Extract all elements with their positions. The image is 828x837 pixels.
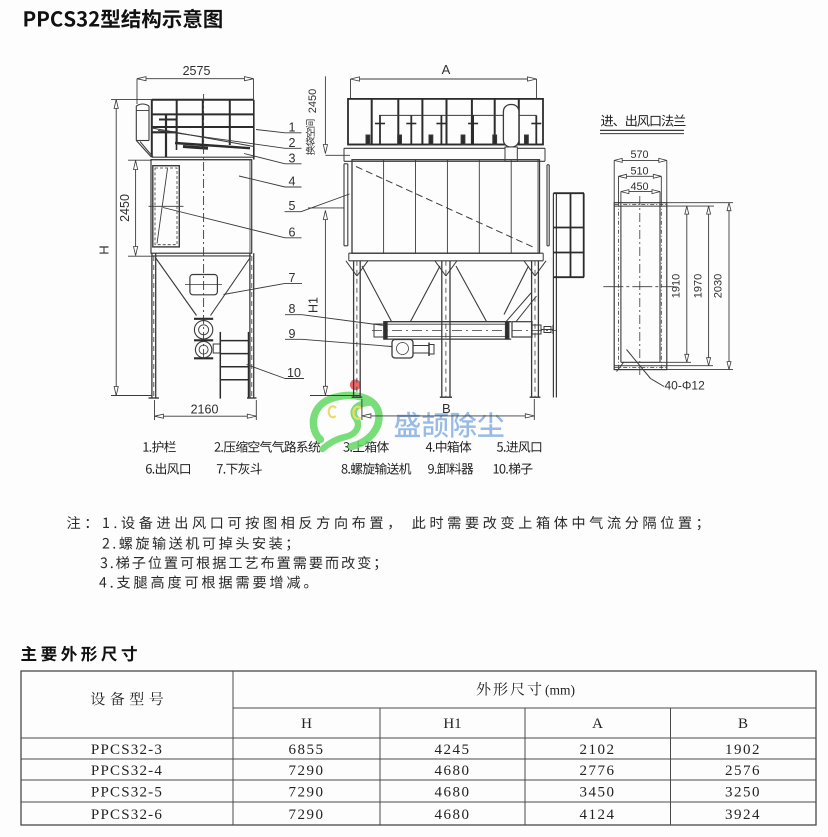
svg-text:7290: 7290 [289,784,325,800]
svg-text:2030: 2030 [713,274,725,298]
svg-text:2160: 2160 [191,403,219,417]
svg-text:H1: H1 [307,297,321,313]
svg-text:570: 570 [630,149,648,161]
svg-text:6855: 6855 [289,742,325,758]
svg-text:5: 5 [289,199,296,213]
svg-text:4: 4 [289,175,296,189]
svg-text:2450: 2450 [118,194,132,222]
svg-text:2: 2 [289,136,296,150]
svg-text:1902: 1902 [725,742,761,758]
svg-text:10: 10 [287,366,301,380]
svg-text:H: H [301,716,312,732]
svg-text:7290: 7290 [289,807,325,823]
svg-text:B: B [442,401,451,416]
svg-text:7: 7 [289,271,296,285]
svg-text:8: 8 [289,302,296,316]
svg-text:4245: 4245 [435,742,471,758]
svg-text:A: A [592,716,603,732]
svg-text:1: 1 [289,120,296,134]
svg-text:9: 9 [289,327,296,341]
svg-text:H: H [97,245,112,254]
svg-text:4680: 4680 [435,807,471,823]
svg-text:7290: 7290 [289,763,325,779]
svg-text:PPCS32-6: PPCS32-6 [91,807,163,823]
svg-text:1910: 1910 [671,274,683,298]
svg-text:2575: 2575 [183,64,211,78]
svg-text:PPCS32-3: PPCS32-3 [91,742,163,758]
svg-text:3450: 3450 [580,784,616,800]
svg-text:3250: 3250 [725,784,761,800]
svg-text:2450: 2450 [307,89,319,113]
svg-text:510: 510 [630,166,648,178]
svg-text:4680: 4680 [435,784,471,800]
svg-text:A: A [442,62,451,77]
svg-text:3924: 3924 [725,807,761,823]
svg-text:6: 6 [289,225,296,239]
svg-text:B: B [738,716,748,732]
svg-text:H1: H1 [443,716,461,732]
svg-text:4124: 4124 [580,807,616,823]
svg-text:4680: 4680 [435,763,471,779]
svg-text:PPCS32-5: PPCS32-5 [91,784,163,800]
svg-text:3: 3 [289,151,296,165]
svg-text:2102: 2102 [580,742,616,758]
svg-text:PPCS32-4: PPCS32-4 [91,763,163,779]
svg-text:1970: 1970 [693,274,705,298]
svg-text:40-Φ12: 40-Φ12 [665,379,706,393]
svg-text:2576: 2576 [725,763,761,779]
svg-text:2776: 2776 [580,763,616,779]
svg-text:(mm): (mm) [545,683,575,698]
